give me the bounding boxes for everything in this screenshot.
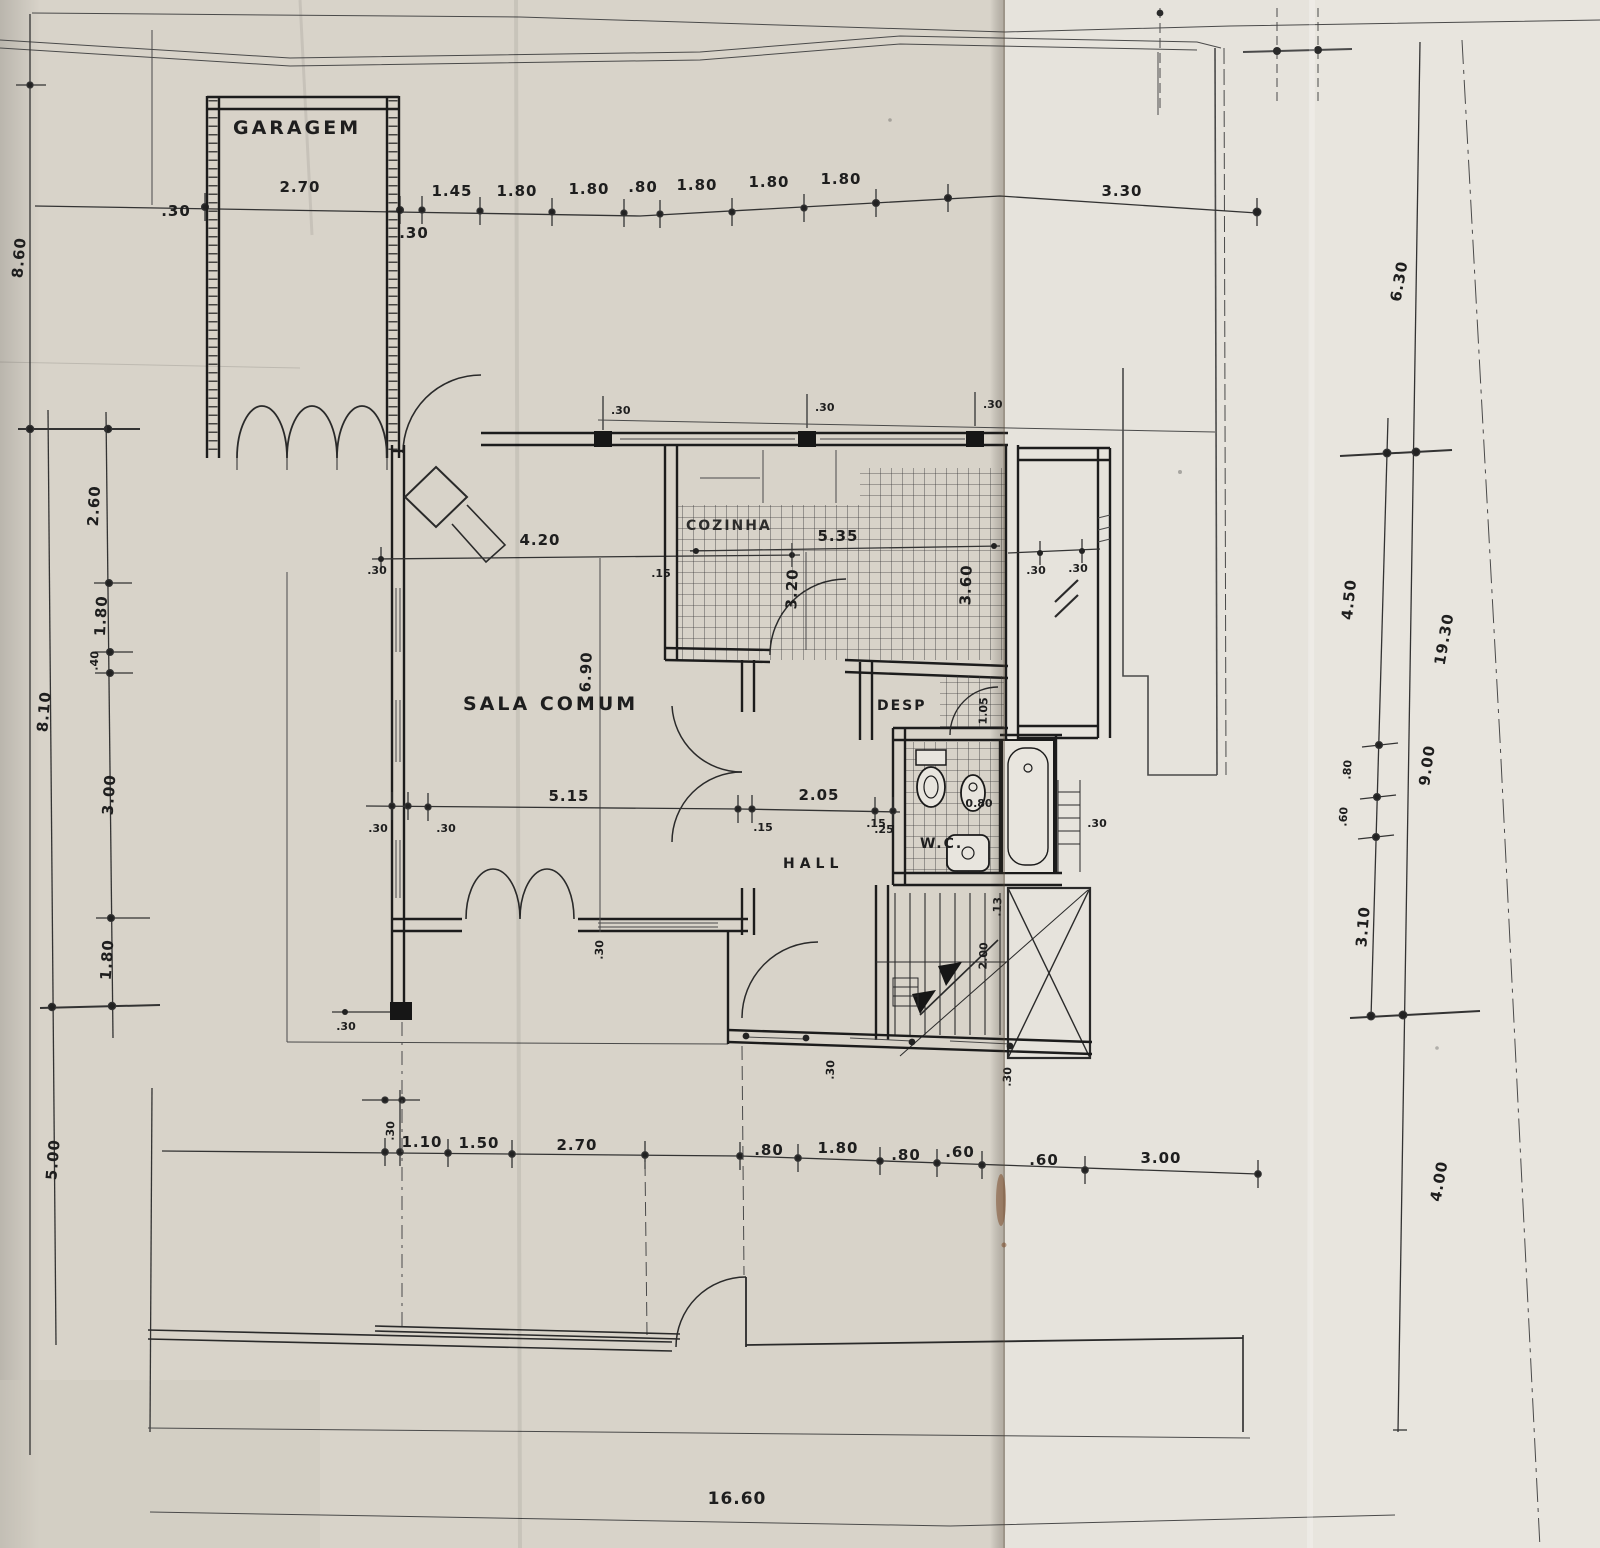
dim-label: .30 bbox=[815, 401, 835, 414]
dim-label: 1.80 bbox=[568, 180, 609, 198]
dim-label: 1.80 bbox=[91, 595, 111, 637]
dim-label: 1.80 bbox=[97, 939, 118, 981]
dim-label: 1.45 bbox=[431, 182, 472, 200]
dim-label: 5.35 bbox=[817, 527, 858, 545]
dim-label: .60 bbox=[945, 1143, 975, 1161]
room-label-cozinha: COZINHA bbox=[686, 518, 772, 534]
dim-label: .15 bbox=[651, 567, 671, 580]
room-label-desp: DESP bbox=[877, 698, 927, 714]
dim-label: .30 bbox=[1087, 817, 1107, 830]
dim-label: .60 bbox=[1029, 1151, 1059, 1169]
dim-label: 8.10 bbox=[33, 690, 55, 732]
dim-label: 0.80 bbox=[965, 797, 992, 810]
dim-label: 1.10 bbox=[401, 1133, 442, 1151]
dim-label: 1.80 bbox=[820, 170, 861, 188]
dim-label: 2.60 bbox=[84, 485, 104, 527]
dim-label: 3.10 bbox=[1352, 905, 1374, 947]
dim-label: 1.50 bbox=[458, 1134, 499, 1152]
bathtub bbox=[1002, 740, 1054, 873]
dim-label: 1.80 bbox=[817, 1139, 858, 1157]
dim-label: 3.60 bbox=[956, 564, 975, 606]
dim-label: .30 bbox=[367, 564, 387, 577]
dim-label: .80 bbox=[891, 1146, 921, 1164]
dim-label: 8.60 bbox=[8, 236, 30, 278]
dim-label: .30 bbox=[1068, 562, 1088, 575]
dim-label: 4.20 bbox=[519, 531, 560, 549]
toilet bbox=[917, 767, 945, 807]
room-label-hall: HALL bbox=[783, 856, 843, 872]
dim-label: .80 bbox=[1340, 759, 1354, 780]
dim-label: .30 bbox=[436, 822, 456, 835]
dim-label: 1.80 bbox=[676, 176, 717, 194]
dim-label: 3.20 bbox=[782, 568, 801, 610]
dim-label: 1.80 bbox=[748, 173, 789, 191]
dim-label: .30 bbox=[384, 1121, 398, 1141]
dim-label: .80 bbox=[754, 1141, 784, 1159]
paper-stain bbox=[996, 1174, 1006, 1226]
dim-label: 3.00 bbox=[99, 774, 120, 816]
room-label-wc: W.C. bbox=[920, 836, 963, 852]
dim-label: 2.05 bbox=[798, 786, 839, 804]
floor-plan-drawing: 8.60 2.60 1.80 .40 8.10 3.00 1.80 5.00 6… bbox=[0, 0, 1600, 1548]
dim-label: 2.70 bbox=[279, 178, 320, 196]
dim-label: .15 bbox=[753, 821, 773, 834]
room-label-garagem: GARAGEM bbox=[233, 117, 361, 139]
dim-label: 1.05 bbox=[977, 697, 991, 725]
room-label-sala: SALA COMUM bbox=[463, 693, 638, 715]
paper-background bbox=[0, 0, 1600, 1548]
dim-label: .30 bbox=[161, 202, 191, 220]
dim-label: 6.90 bbox=[576, 651, 595, 693]
dim-label: 5.00 bbox=[42, 1138, 64, 1180]
dim-label: 2.00 bbox=[977, 942, 991, 970]
dim-label: 3.30 bbox=[1101, 182, 1142, 200]
dim-label: .30 bbox=[368, 822, 388, 835]
dim-label: .40 bbox=[88, 650, 102, 670]
dim-label-total-width: 16.60 bbox=[708, 1489, 767, 1509]
dim-label: .30 bbox=[593, 940, 607, 960]
dim-label: .60 bbox=[1336, 806, 1350, 827]
dim-label: .30 bbox=[611, 404, 631, 417]
dim-label: .30 bbox=[336, 1020, 356, 1033]
dim-label: .30 bbox=[399, 224, 429, 242]
dim-label: .80 bbox=[628, 178, 658, 196]
dim-label: 5.15 bbox=[548, 787, 589, 805]
dim-label: 2.70 bbox=[556, 1136, 597, 1154]
dim-label: 3.00 bbox=[1140, 1149, 1181, 1167]
scanned-floor-plan-page: 8.60 2.60 1.80 .40 8.10 3.00 1.80 5.00 6… bbox=[0, 0, 1600, 1548]
dim-label: .30 bbox=[1026, 564, 1046, 577]
dim-label: .30 bbox=[824, 1060, 838, 1080]
porch-column bbox=[390, 1002, 412, 1020]
dim-label: .15 bbox=[866, 817, 886, 830]
